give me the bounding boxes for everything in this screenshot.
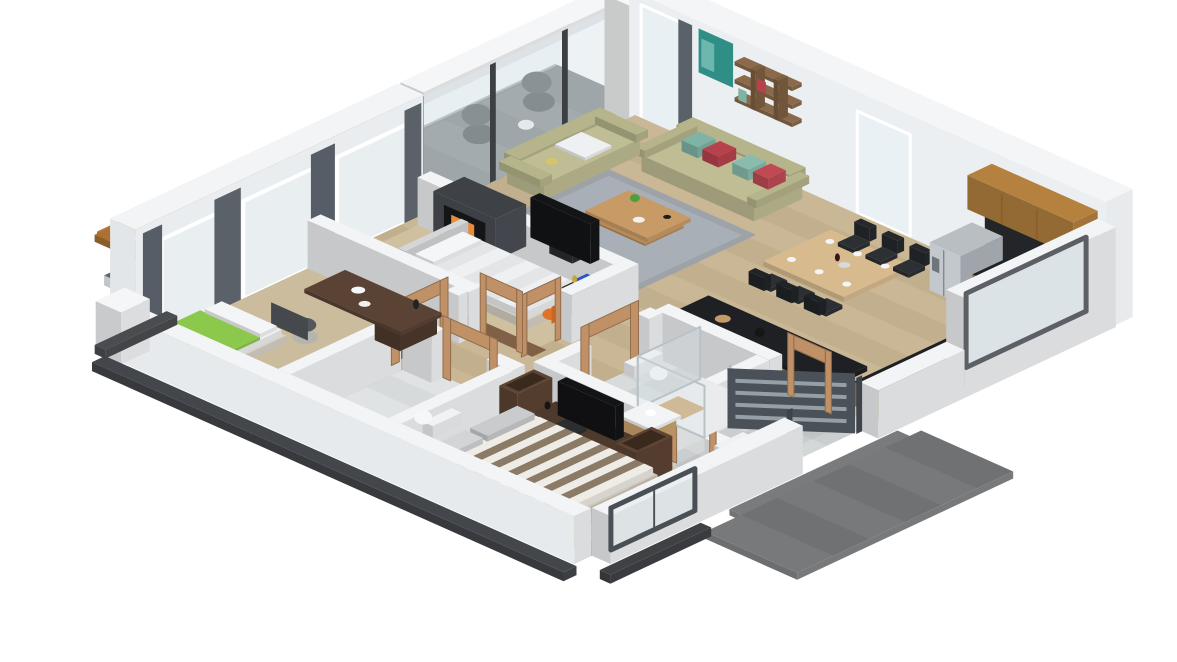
master-window-mullion bbox=[653, 487, 655, 530]
centerpiece-plate bbox=[838, 262, 850, 268]
glass-door-mullion-3 bbox=[490, 62, 496, 183]
kettle bbox=[755, 328, 765, 337]
desk-lamp bbox=[413, 299, 419, 309]
plate-4 bbox=[787, 257, 796, 262]
floorplan-svg bbox=[0, 0, 1177, 662]
doorframe-entry-post-2 bbox=[825, 349, 831, 414]
doorframe-hall-post-2 bbox=[517, 289, 523, 354]
doorframe-entry-post-1 bbox=[788, 333, 794, 398]
cabinet-seam-2 bbox=[1036, 209, 1038, 240]
doorframe-hall-post-1 bbox=[480, 273, 486, 338]
doorframe-bed2-post-1 bbox=[555, 277, 561, 342]
front-door-jamb-1 bbox=[856, 375, 862, 434]
fridge-door-split bbox=[943, 250, 944, 297]
wall-shelf-divider-2-face-se bbox=[778, 76, 788, 121]
bath-basin bbox=[645, 409, 656, 416]
wall-southeast-a-face-sw bbox=[860, 382, 878, 438]
wall-southeast-c-face-sw bbox=[592, 508, 610, 564]
coffee-table-tray bbox=[633, 217, 645, 223]
cabinet-seam-1 bbox=[1001, 194, 1003, 225]
desk-papers-1 bbox=[351, 287, 365, 294]
doorframe-wc-post-1 bbox=[443, 316, 451, 381]
wall-wc-top-a-face-se bbox=[431, 329, 444, 383]
desk-papers-2 bbox=[359, 301, 371, 307]
wall-shelf-divider-1-face-sw bbox=[751, 69, 756, 111]
apartment-3d-floorplan bbox=[0, 0, 1177, 662]
wc-toilet-bowl bbox=[414, 411, 432, 425]
coffee-table-plant bbox=[630, 194, 640, 202]
cutting-board bbox=[715, 315, 731, 323]
coffee-table-remote bbox=[663, 215, 671, 219]
plate-1 bbox=[825, 239, 834, 244]
plate-3 bbox=[881, 264, 890, 269]
plate-5 bbox=[815, 269, 824, 274]
sun-hat bbox=[546, 158, 558, 165]
wall-southwest-face-se bbox=[574, 508, 591, 564]
wall-art-inner bbox=[701, 39, 714, 73]
wine-bottle bbox=[835, 253, 840, 261]
tv-living-face-se bbox=[590, 220, 599, 264]
master-speaker bbox=[545, 402, 551, 410]
plate-2 bbox=[853, 251, 862, 256]
master-tv-face-se bbox=[615, 403, 624, 441]
wall-shelf-divider-2-face-sw bbox=[774, 79, 779, 121]
plate-6 bbox=[842, 282, 851, 287]
